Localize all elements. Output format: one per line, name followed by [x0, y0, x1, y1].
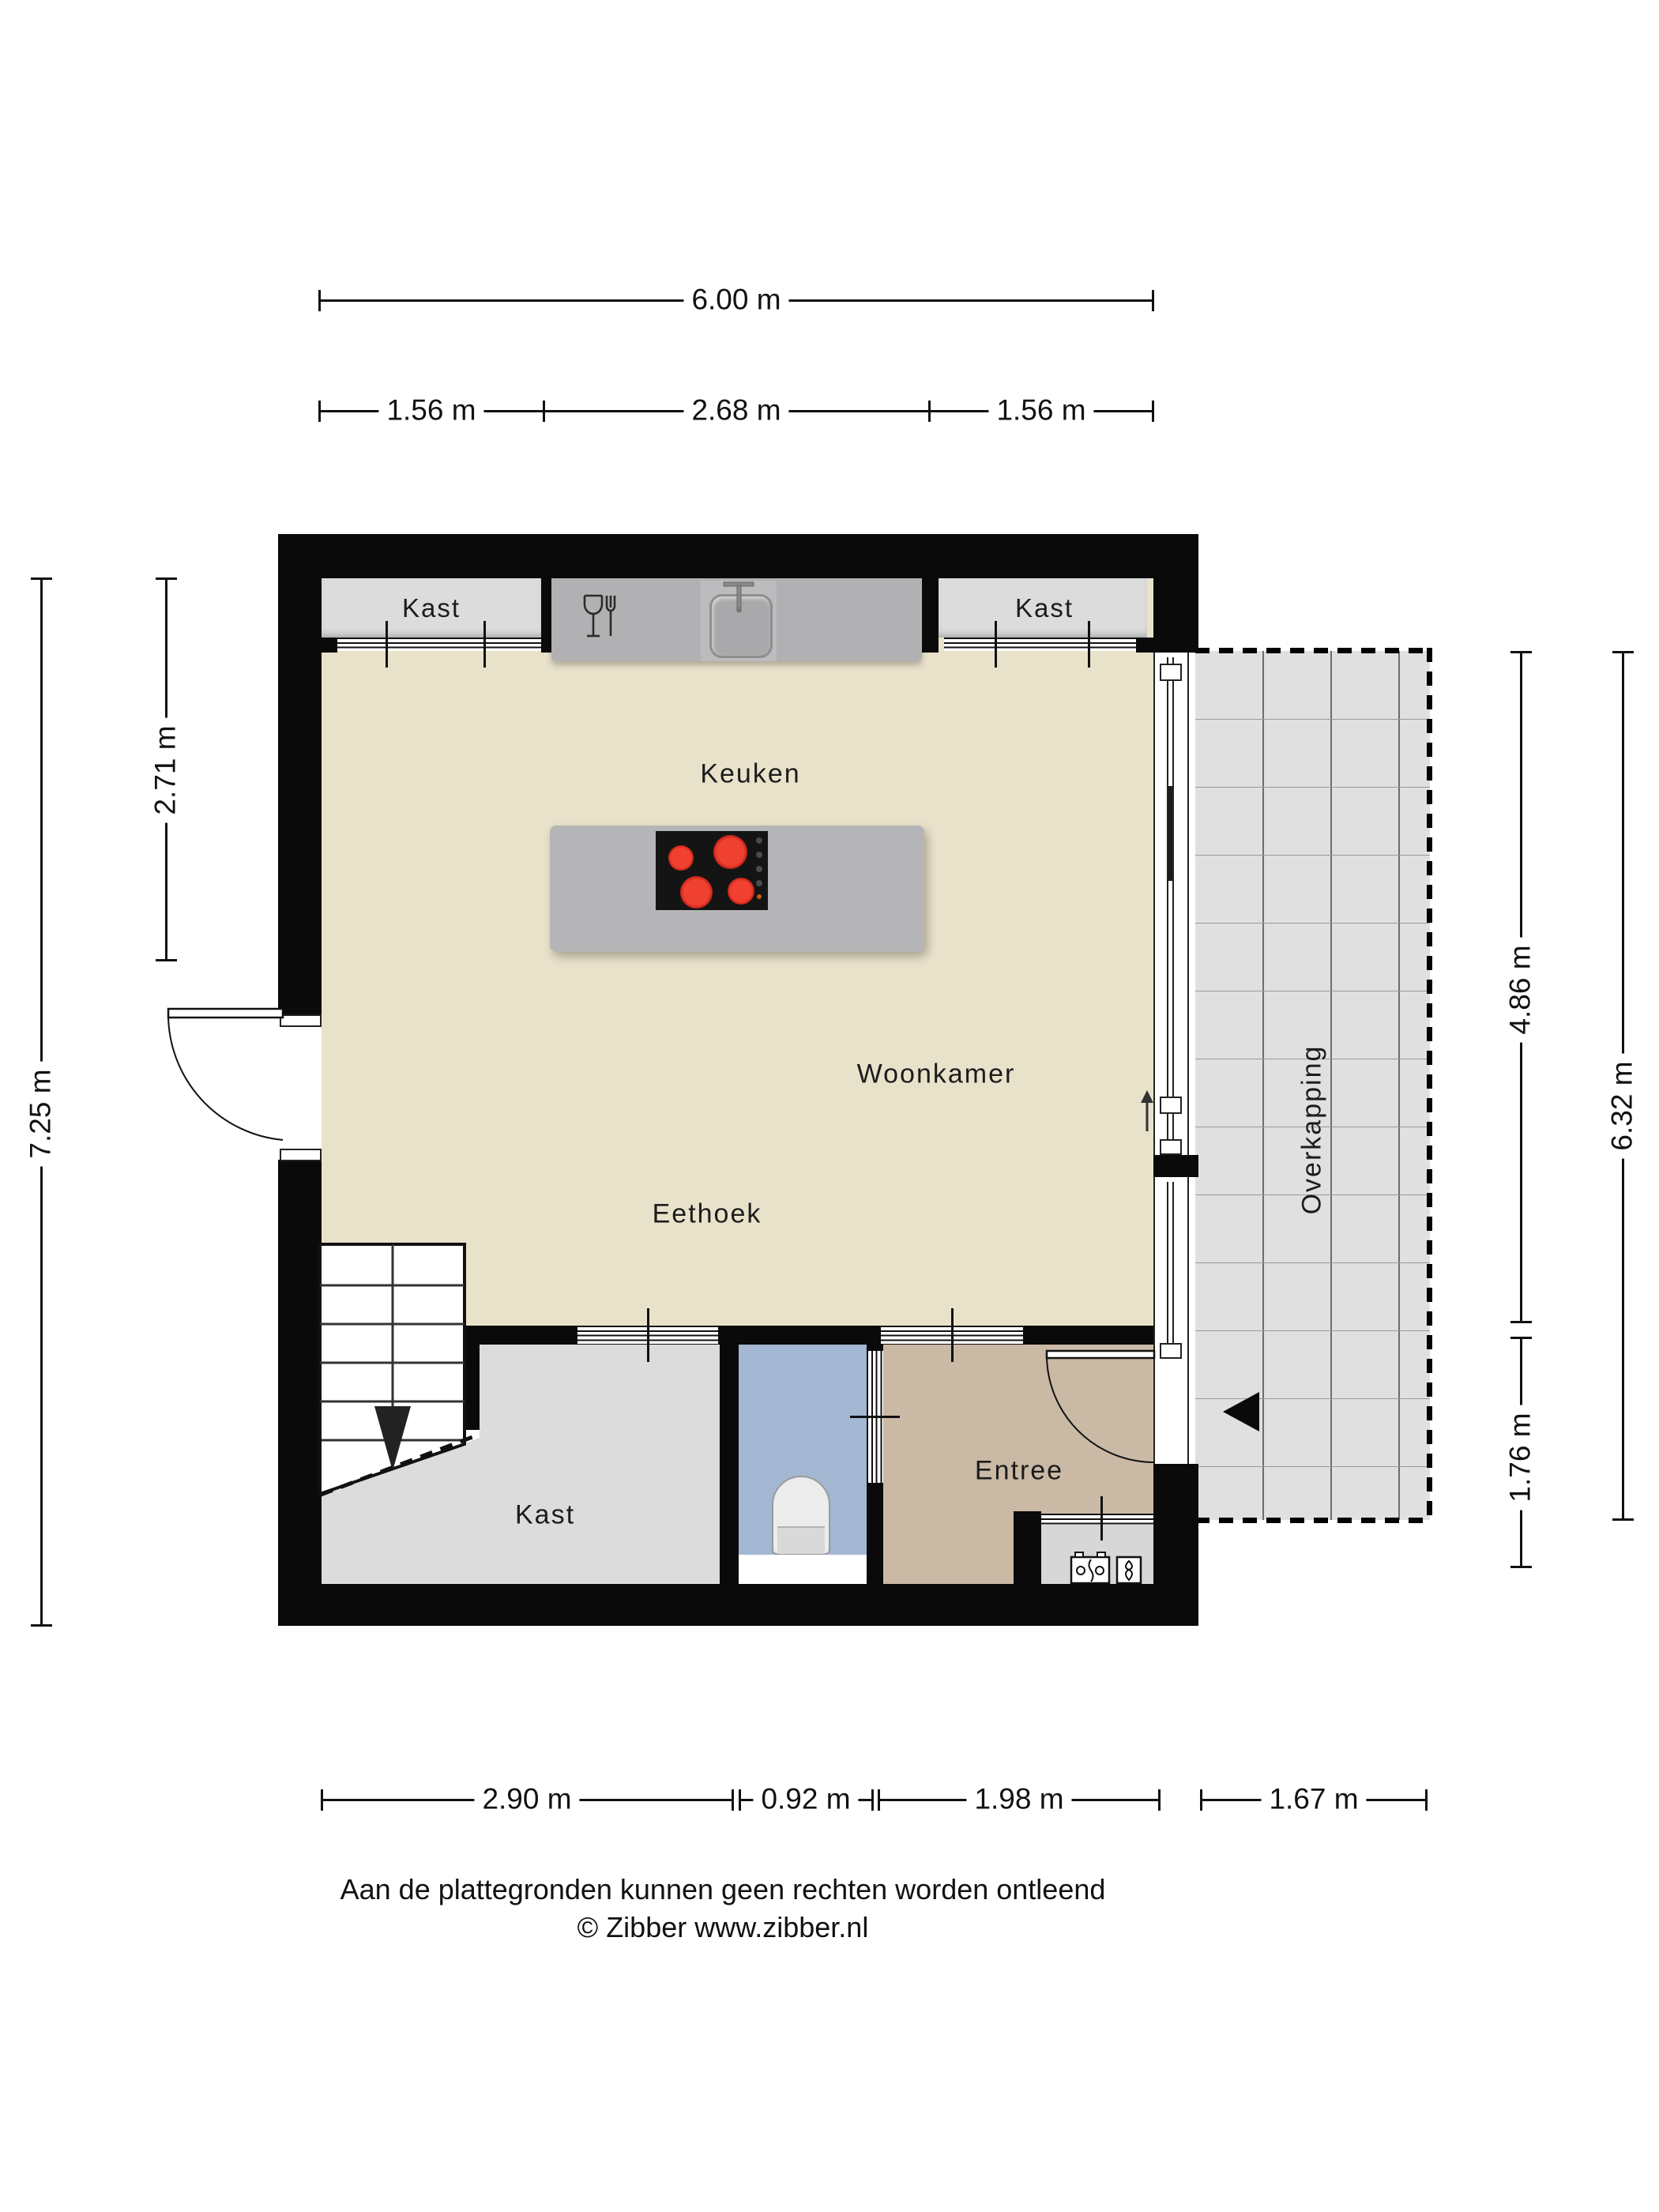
dim-tick — [878, 1789, 880, 1811]
room-label-eethoek: Eethoek — [653, 1199, 762, 1230]
dim-label-bottom-3: 1.98 m — [966, 1784, 1071, 1816]
dim-tick — [1612, 651, 1634, 653]
room-label-kast-bottom: Kast — [515, 1500, 575, 1531]
dim-tick — [1425, 1789, 1428, 1811]
dim-label-bottom-2: 0.92 m — [753, 1784, 858, 1816]
dim-tick — [1510, 1337, 1532, 1339]
dim-tick — [543, 401, 545, 422]
glass-fork-icon — [585, 596, 615, 636]
dim-tick — [31, 1624, 52, 1627]
dim-tick — [1152, 290, 1154, 311]
dim-tick — [318, 290, 321, 311]
dim-label-left-total: 7.25 m — [25, 1061, 58, 1166]
room-label-kast-top-left: Kast — [402, 593, 461, 623]
dim-tick — [31, 577, 52, 580]
left-exterior-door — [168, 1009, 283, 1140]
electric-meter-icon — [1071, 1552, 1109, 1583]
staircase — [320, 1244, 465, 1494]
disclaimer-text: Aan de plattegronden kunnen geen rechten… — [340, 1873, 1106, 1906]
dim-label-top-mid: 2.68 m — [683, 395, 788, 427]
dim-label-bottom-4: 1.67 m — [1261, 1784, 1366, 1816]
dim-tick — [1510, 1321, 1532, 1323]
dim-tick — [318, 401, 321, 422]
door-slide-arrow-icon — [1141, 1090, 1153, 1131]
dim-tick — [1510, 651, 1532, 653]
dim-label-top-right: 1.56 m — [988, 395, 1093, 427]
dim-tick — [928, 401, 931, 422]
gas-meter-icon — [1117, 1557, 1141, 1583]
dim-tick — [1152, 401, 1154, 422]
dim-label-left-inner: 2.71 m — [150, 717, 182, 822]
room-label-overkapping: Overkapping — [1297, 1045, 1328, 1215]
dim-tick — [1510, 1566, 1532, 1568]
dim-label-bottom-1: 2.90 m — [474, 1784, 579, 1816]
room-label-entree: Entree — [975, 1456, 1063, 1487]
front-entrance-door — [1047, 1351, 1154, 1462]
entrance-arrow-icon — [1223, 1392, 1259, 1431]
dim-label-right-upper: 4.86 m — [1505, 937, 1537, 1042]
faucet-icon — [724, 582, 754, 613]
dim-tick — [156, 577, 177, 580]
dim-tick — [732, 1789, 734, 1811]
dim-tick — [1158, 1789, 1161, 1811]
dim-tick — [871, 1789, 874, 1811]
room-label-woonkamer: Woonkamer — [857, 1059, 1016, 1090]
dim-tick — [1612, 1518, 1634, 1521]
room-label-kast-top-right: Kast — [1015, 593, 1074, 623]
copyright-text: © Zibber www.zibber.nl — [577, 1911, 869, 1944]
dim-tick — [1200, 1789, 1202, 1811]
floorplan-canvas: Kast Kast Keuken Woonkamer Eethoek Kast … — [0, 0, 1659, 2212]
dim-label-right-total: 6.32 m — [1607, 1053, 1639, 1158]
dim-label-right-lower: 1.76 m — [1505, 1405, 1537, 1510]
dim-label-top-left: 1.56 m — [378, 395, 483, 427]
dim-tick — [156, 959, 177, 961]
dim-label-top-total: 6.00 m — [683, 284, 788, 317]
dim-tick — [739, 1789, 741, 1811]
toilet-tank — [777, 1526, 825, 1554]
dim-tick — [321, 1789, 323, 1811]
room-label-keuken: Keuken — [700, 759, 800, 790]
